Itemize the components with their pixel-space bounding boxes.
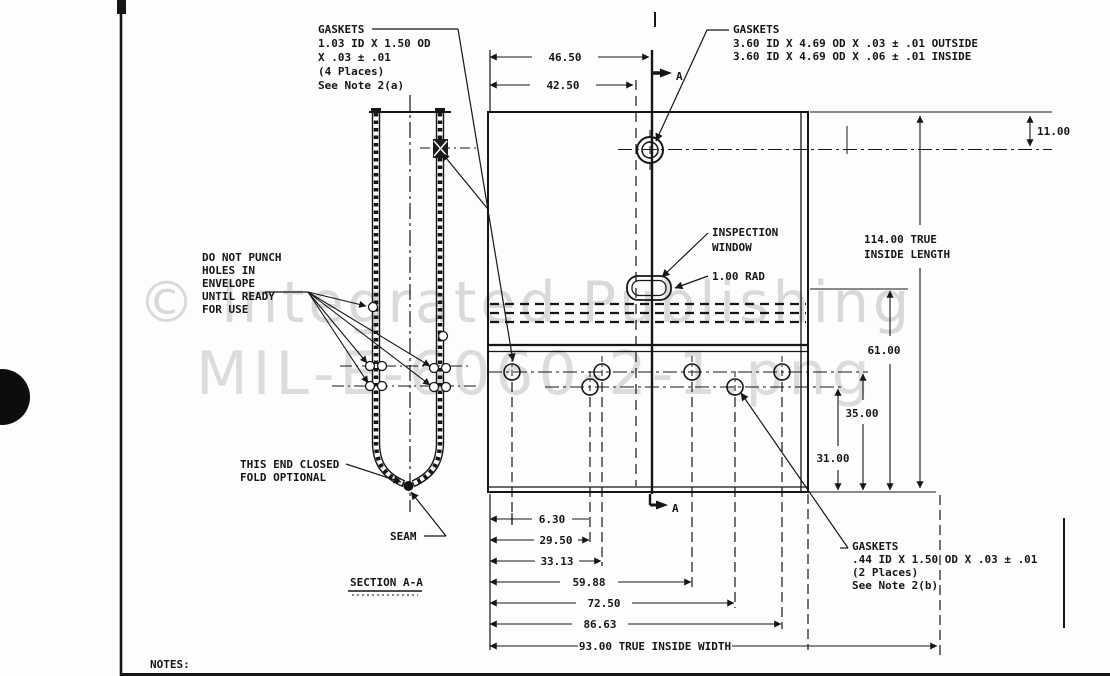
watermark-line-2: MIL-E-6060-2-1.png xyxy=(196,339,875,409)
gaskets-top-right-line2: 3.60 ID X 4.69 OD X .03 ± .01 OUTSIDE xyxy=(733,37,978,50)
inspection-window-line2: WINDOW xyxy=(712,241,752,254)
do-not-punch-line4: UNTIL READY xyxy=(202,290,275,303)
dim-29-50: 29.50 xyxy=(490,534,589,547)
dim-33-13-text: 33.13 xyxy=(540,555,573,568)
seam-text: SEAM xyxy=(390,530,417,543)
gaskets-top-left-line4: (4 Places) xyxy=(318,65,384,78)
dim-59-88-text: 59.88 xyxy=(572,576,605,589)
dim-42-50-text: 42.50 xyxy=(546,79,579,92)
dim-72-50: 72.50 xyxy=(490,597,734,610)
dim-46-50-text: 46.50 xyxy=(548,51,581,64)
dim-11-00-text: 11.00 xyxy=(1037,125,1070,138)
gaskets-bottom-right-line2: .44 ID X 1.50 OD X .03 ± .01 xyxy=(852,553,1038,566)
dim-42-50: 42.50 xyxy=(490,79,633,92)
section-bottom-fold xyxy=(373,442,444,491)
grommet xyxy=(618,130,1052,172)
gaskets-top-right-line1: GASKETS xyxy=(733,23,779,36)
do-not-punch-line3: ENVELOPE xyxy=(202,277,255,290)
section-title-text: SECTION A-A xyxy=(350,576,423,589)
section-arrow-top xyxy=(660,69,672,78)
gaskets-bottom-right-line1: GASKETS xyxy=(852,540,898,553)
gaskets-top-right-line3: 3.60 ID X 4.69 OD X .06 ± .01 INSIDE xyxy=(733,50,971,63)
gaskets-top-left-line2: 1.03 ID X 1.50 OD xyxy=(318,37,431,50)
dim-93-00-text: 93.00 TRUE INSIDE WIDTH xyxy=(579,640,731,653)
dim-61-00-text: 61.00 xyxy=(867,344,900,357)
section-marker-bottom: A xyxy=(650,494,679,515)
binder-hole-mark xyxy=(0,369,30,425)
this-end-closed-line1: THIS END CLOSED xyxy=(240,458,340,471)
dim-72-50-text: 72.50 xyxy=(587,597,620,610)
label-section-aa: SECTION A-A xyxy=(348,576,423,595)
seam-point xyxy=(404,481,414,491)
dim-6-30-text: 6.30 xyxy=(539,513,566,526)
section-wall-grommet xyxy=(433,139,448,158)
this-end-closed-line2: FOLD OPTIONAL xyxy=(240,471,326,484)
dim-29-50-text: 29.50 xyxy=(539,534,572,547)
drawing-sheet: © Integrated Publishing MIL-E-6060-2-1.p… xyxy=(0,0,1110,676)
sheet-borders xyxy=(0,0,1110,676)
gaskets-top-left-line1: GASKETS xyxy=(318,23,364,36)
notes-label: NOTES: xyxy=(150,658,190,671)
technical-drawing: © Integrated Publishing MIL-E-6060-2-1.p… xyxy=(0,0,1110,676)
inspection-window-line1: INSPECTION xyxy=(712,226,778,239)
do-not-punch-line2: HOLES IN xyxy=(202,264,255,277)
section-marker-bottom-text: A xyxy=(672,502,679,515)
rad-text: 1.00 RAD xyxy=(712,270,765,283)
do-not-punch-line5: FOR USE xyxy=(202,303,248,316)
dim-86-63: 86.63 xyxy=(490,618,781,631)
section-marker-top: A xyxy=(652,69,683,84)
dim-86-63-text: 86.63 xyxy=(583,618,616,631)
gaskets-top-left-line3: X .03 ± .01 xyxy=(318,51,391,64)
dim-33-13: 33.13 xyxy=(490,555,601,568)
dim-35-00-text: 35.00 xyxy=(845,407,878,420)
section-arrow-bottom xyxy=(656,501,668,510)
dim-93-00: 93.00 TRUE INSIDE WIDTH xyxy=(490,640,937,653)
dim-59-88: 59.88 xyxy=(490,576,691,589)
gaskets-top-left-line5: See Note 2(a) xyxy=(318,79,404,92)
gaskets-bottom-right-line4: See Note 2(b) xyxy=(852,579,938,592)
dim-114-00-text-1: 114.00 TRUE xyxy=(864,233,937,246)
gaskets-bottom-right-line3: (2 Places) xyxy=(852,566,918,579)
dim-31-00-text: 31.00 xyxy=(816,452,849,465)
dim-11-00: 11.00 xyxy=(1030,116,1070,146)
label-seam: SEAM xyxy=(390,492,446,543)
label-gaskets-top-right: GASKETS 3.60 ID X 4.69 OD X .03 ± .01 OU… xyxy=(656,23,978,141)
dim-6-30: 6.30 xyxy=(490,513,589,526)
sheet-corner-mark xyxy=(117,0,126,14)
do-not-punch-line1: DO NOT PUNCH xyxy=(202,251,281,264)
dim-114-00-text-2: INSIDE LENGTH xyxy=(864,248,950,261)
label-this-end-closed: THIS END CLOSED FOLD OPTIONAL xyxy=(240,458,401,484)
dim-46-50: 46.50 xyxy=(490,51,649,64)
section-marker-top-text: A xyxy=(676,70,683,83)
